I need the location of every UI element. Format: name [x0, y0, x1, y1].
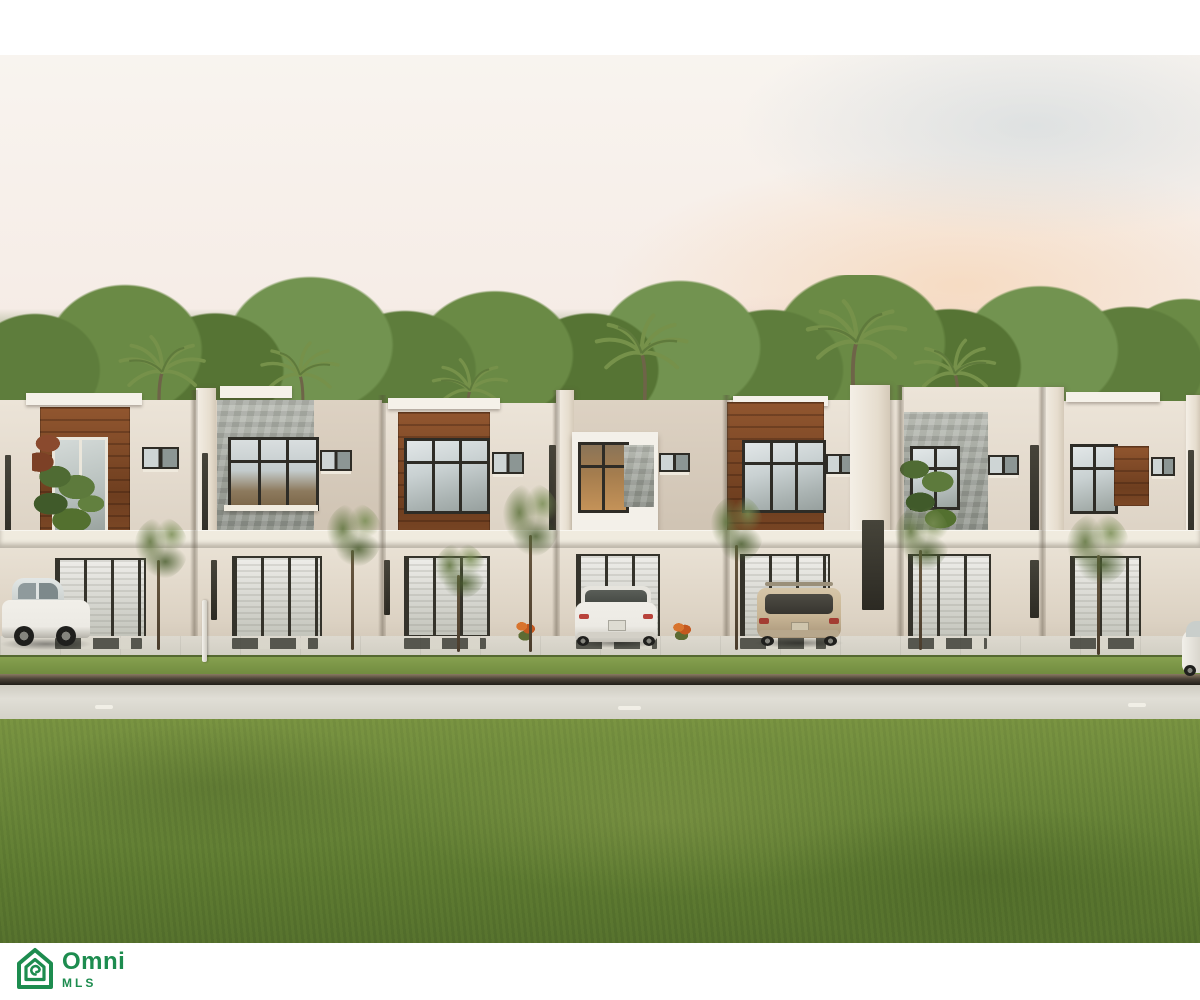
small-window — [320, 450, 352, 471]
lane-marking — [95, 705, 113, 709]
flower-pot — [672, 622, 691, 640]
parapet-cap — [220, 386, 292, 398]
car-taillight — [643, 614, 653, 619]
car-wheel — [824, 636, 837, 646]
car-roof-rails — [765, 582, 833, 586]
driveway-pavers — [404, 638, 486, 649]
omnimls-logo: Omni MLS — [14, 944, 125, 992]
small-window — [988, 455, 1019, 475]
tree-canopy — [434, 543, 486, 599]
tree-canopy — [1066, 513, 1130, 585]
lane-marking — [1128, 703, 1146, 707]
tree-canopy — [710, 495, 764, 563]
parapet-cap — [1066, 392, 1160, 402]
upper-window — [742, 440, 826, 513]
car-taillight — [579, 614, 589, 619]
stone-accent-panel — [624, 445, 654, 507]
upper-window — [1070, 444, 1118, 514]
tree-canopy — [326, 503, 382, 567]
logo-text: Omni — [62, 950, 125, 974]
entry-door — [862, 520, 884, 610]
vertical-garden — [32, 433, 104, 537]
driveway-pavers — [232, 638, 318, 649]
small-window — [1151, 457, 1175, 476]
wood-accent-panel — [1114, 446, 1149, 506]
lane-marking — [618, 706, 641, 710]
lower-glass-door — [232, 556, 322, 639]
small-window — [659, 453, 690, 472]
front-lawn — [0, 719, 1200, 943]
bollard-post — [202, 600, 207, 662]
small-window — [142, 447, 179, 469]
car-wheel — [643, 636, 655, 646]
tan-suv-rear — [757, 582, 841, 646]
car-taillight — [829, 618, 839, 624]
upper-window — [228, 437, 319, 511]
unit-divider-shadow — [1038, 387, 1046, 652]
parapet-cap — [388, 398, 500, 409]
property-rendering-photo — [0, 55, 1200, 943]
car-wheel — [14, 626, 34, 646]
logo-text-block: Omni MLS — [62, 950, 125, 990]
curb — [0, 674, 1200, 685]
upper-window — [578, 442, 629, 513]
slit-window — [211, 560, 217, 620]
listing-photo-page: Omni MLS — [0, 0, 1200, 1000]
driveway-pavers — [1070, 638, 1137, 649]
car-rear-window — [765, 594, 833, 614]
small-window — [492, 452, 524, 474]
car-wheel — [1184, 665, 1196, 676]
parapet-cap — [26, 393, 142, 405]
car-window — [1186, 621, 1200, 637]
upper-window — [404, 438, 490, 514]
car-taillight — [759, 618, 769, 624]
road — [0, 685, 1200, 721]
car-license-plate — [608, 620, 626, 631]
white-sedan-side — [2, 578, 90, 650]
house-spiral-icon — [14, 944, 56, 992]
window-sill — [224, 505, 318, 511]
logo-subtext: MLS — [62, 976, 125, 990]
white-sedan-rear — [575, 586, 657, 646]
grass-strip — [0, 655, 1200, 676]
flower-pot — [514, 620, 536, 641]
white-car-partial — [1182, 621, 1200, 677]
tree-canopy — [894, 505, 950, 571]
unit-divider-shadow — [190, 390, 198, 652]
tree-canopy — [502, 483, 560, 557]
car-wheel — [56, 626, 76, 646]
car-wheel — [761, 636, 774, 646]
tree-canopy — [134, 517, 188, 579]
car-wheel — [577, 636, 589, 646]
car-window — [18, 583, 58, 599]
